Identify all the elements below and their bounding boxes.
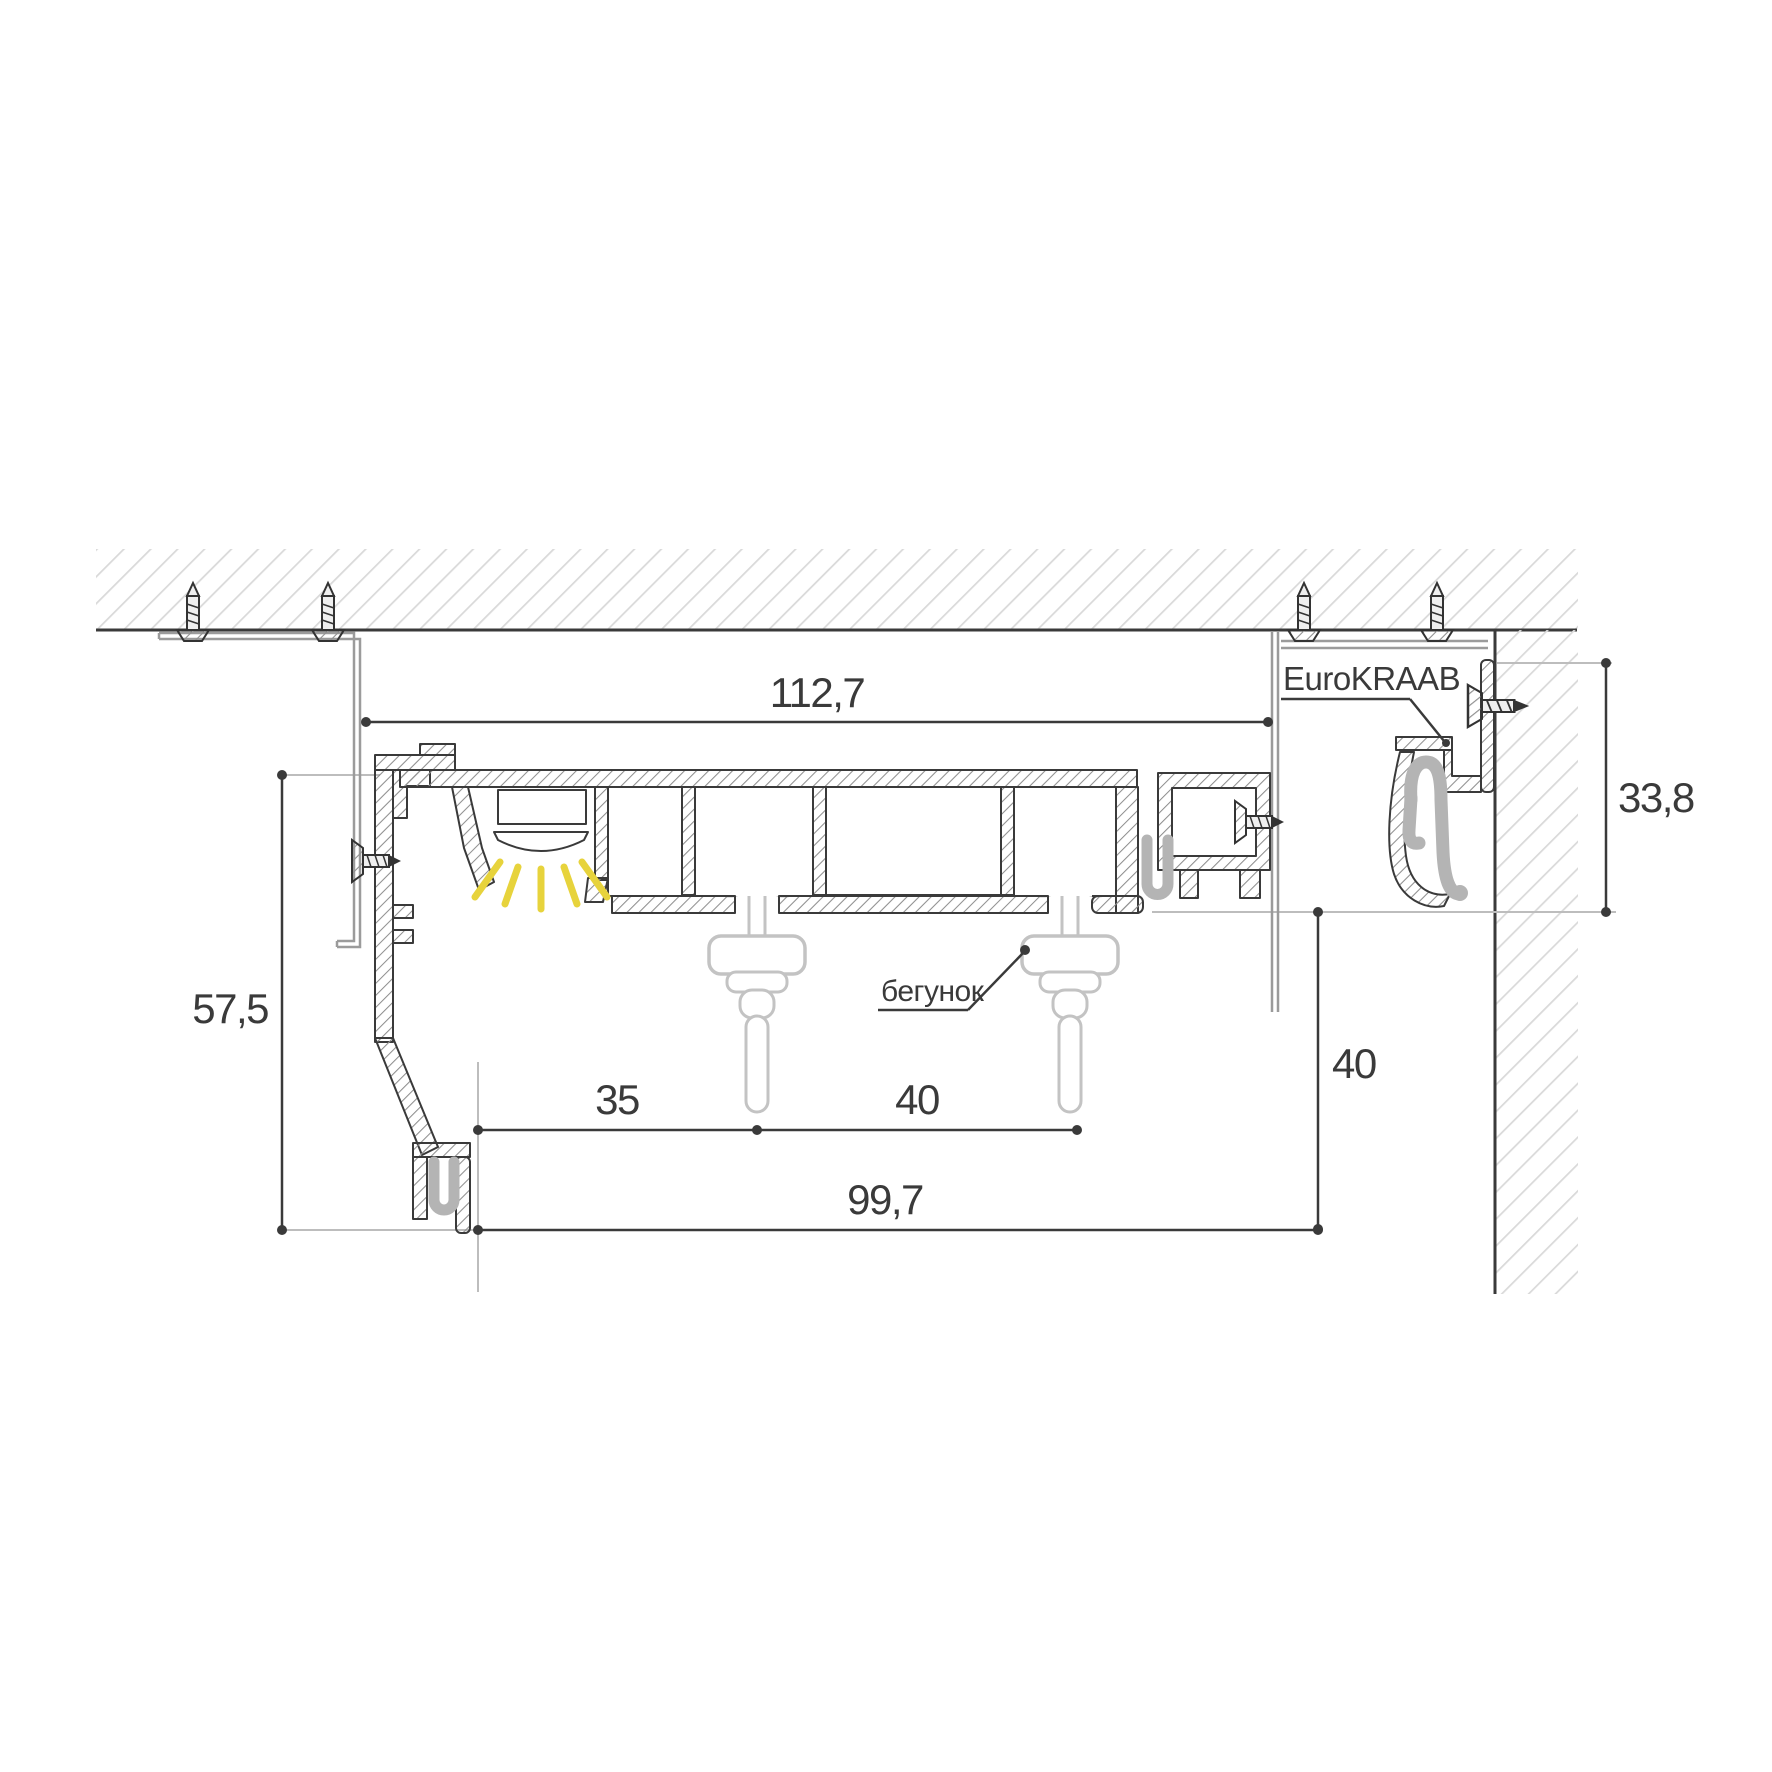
wall — [1495, 630, 1578, 1294]
dim-label: 112,7 — [770, 669, 865, 716]
runner-channel-1 — [695, 787, 813, 896]
right-end-wall — [1116, 787, 1138, 913]
section-drawing: 112,7 57,5 35 40 99,7 40 33,8 EuroKRAAB … — [0, 0, 1772, 1772]
left-end-wall — [375, 770, 393, 1042]
ceiling — [96, 549, 1578, 630]
dimension-left-height: 57,5 — [192, 770, 287, 1235]
dimension-bottom-width: 99,7 — [473, 1176, 1323, 1235]
track-chamber — [608, 787, 682, 896]
runner-label: бегунок — [881, 975, 985, 1008]
dim-label: 35 — [595, 1076, 639, 1123]
track-chamber-center — [826, 787, 1001, 895]
drawing-canvas: 112,7 57,5 35 40 99,7 40 33,8 EuroKRAAB … — [0, 0, 1772, 1772]
callout-brand: EuroKRAAB — [1281, 660, 1460, 747]
dim-label: 40 — [895, 1076, 939, 1123]
wall-hatch — [1495, 630, 1578, 1294]
led-lens — [494, 832, 588, 851]
corner-end-piece — [1158, 773, 1270, 898]
track-top-plate — [400, 770, 1137, 787]
track-bottom-plate — [612, 896, 735, 913]
dim-label: 57,5 — [192, 985, 268, 1032]
ceiling-hatch — [96, 549, 1578, 630]
brand-label: EuroKRAAB — [1283, 660, 1460, 697]
dim-label: 99,7 — [847, 1176, 923, 1223]
runner-channel-2 — [1014, 787, 1116, 896]
dimension-runner-spacing: 35 40 — [473, 1076, 1082, 1135]
spring-clip-left — [434, 1162, 454, 1210]
led-strip-box — [498, 790, 586, 824]
left-diagonal-wing — [375, 1038, 438, 1155]
dim-label: 40 — [1332, 1040, 1376, 1087]
dimension-wall-drop: 40 — [1313, 907, 1376, 1234]
callout-runner: бегунок — [878, 945, 1030, 1010]
wall-plate — [1481, 660, 1494, 792]
dimension-track-width: 112,7 — [361, 669, 1273, 727]
dimension-bracket-height: 33,8 — [1601, 658, 1694, 917]
dim-label: 33,8 — [1618, 774, 1694, 821]
left-perimeter-bracket — [159, 633, 360, 947]
